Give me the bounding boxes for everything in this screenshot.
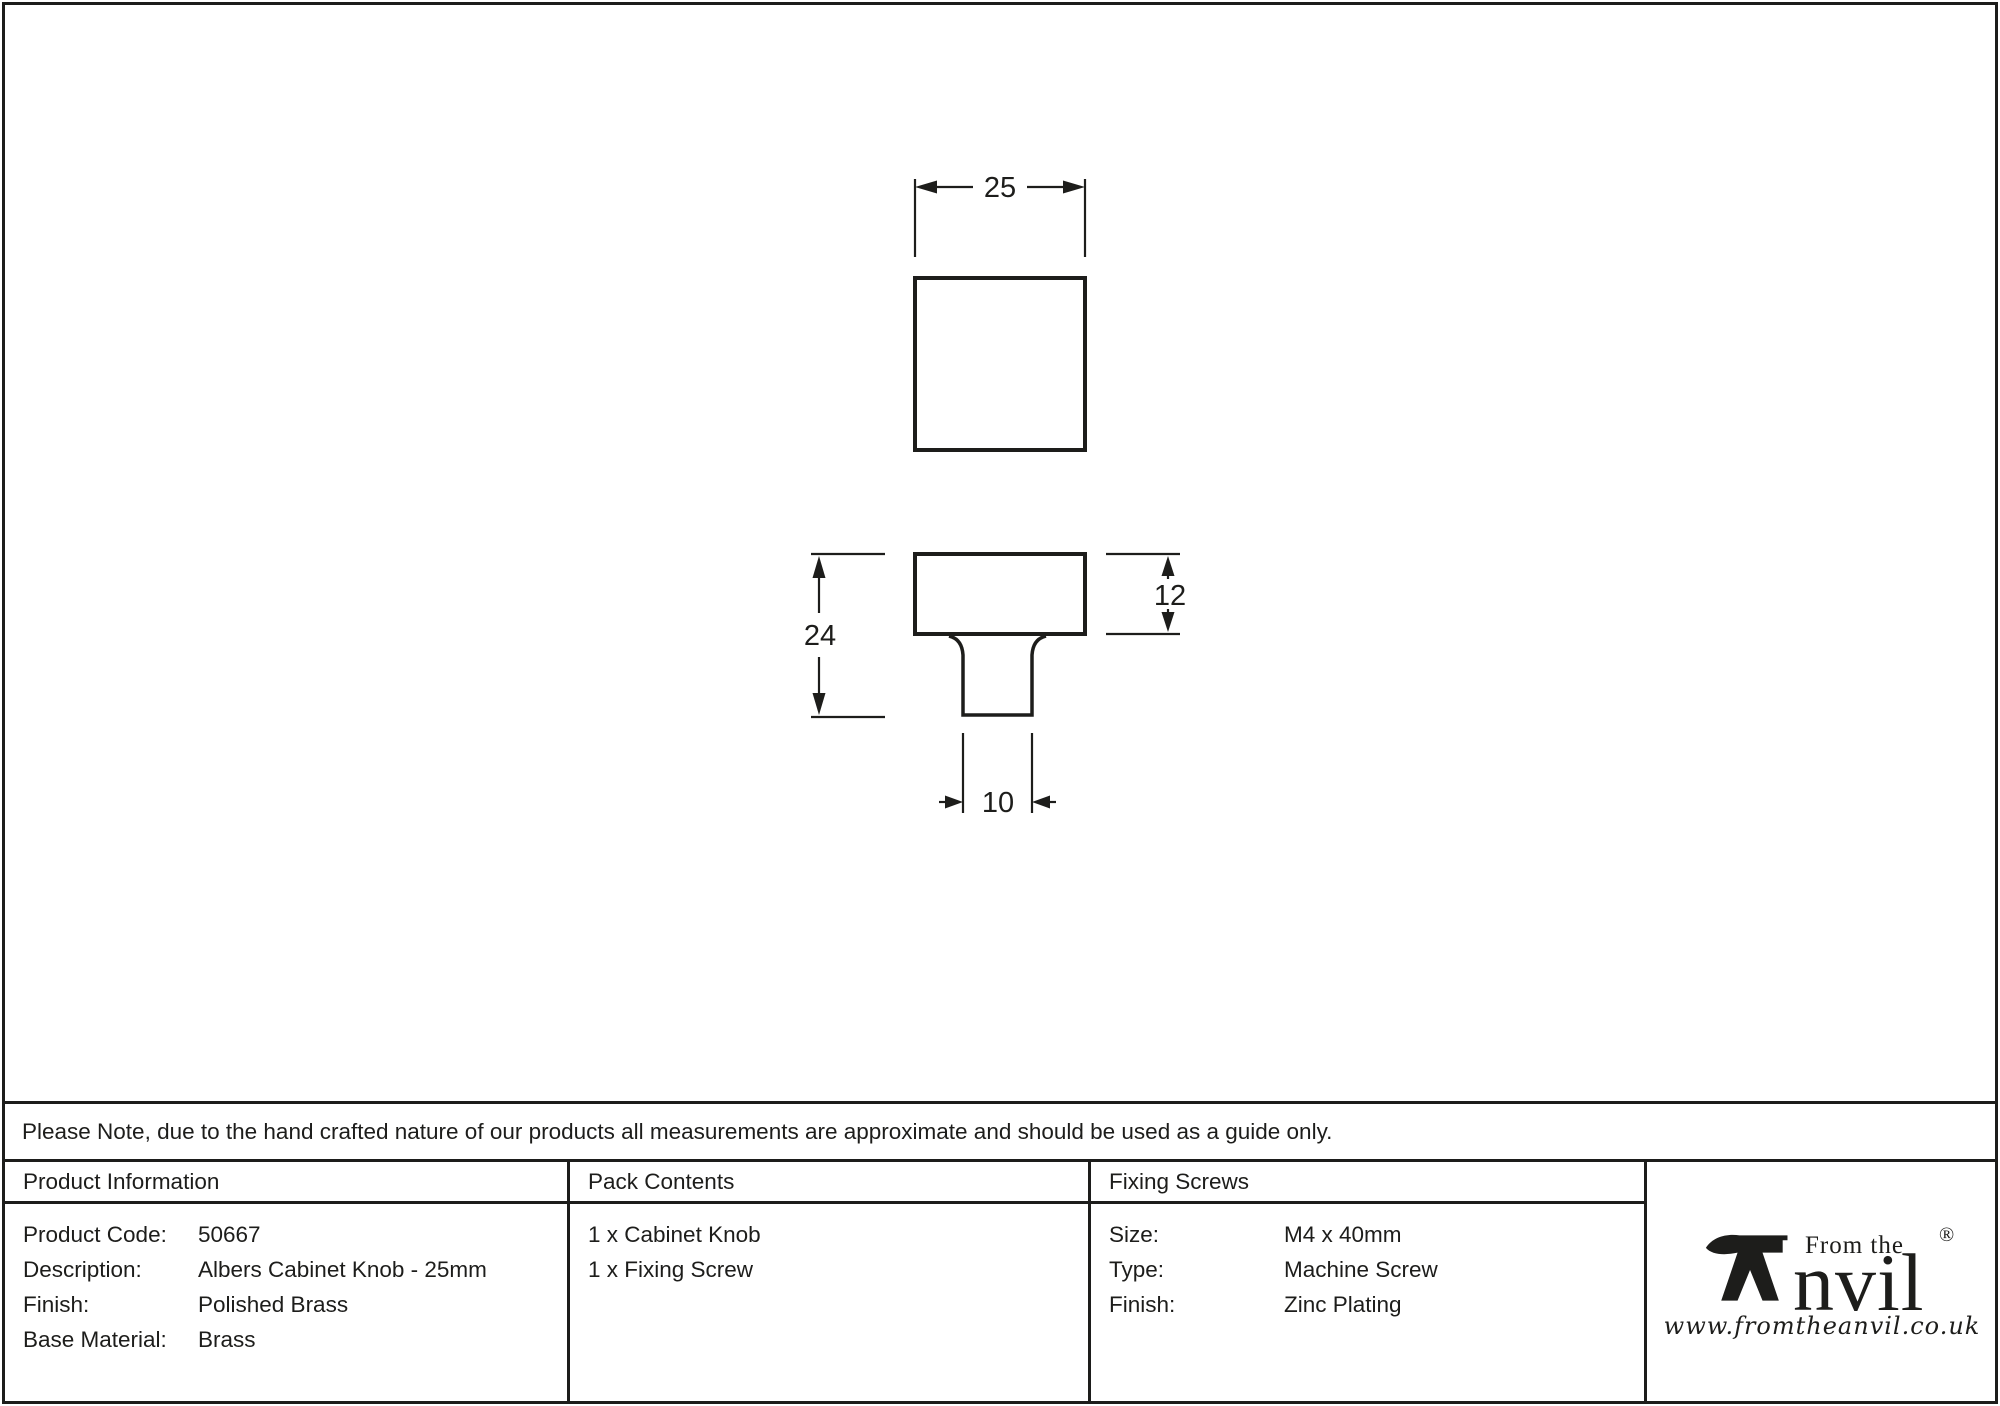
table-row: Finish: Polished Brass — [23, 1287, 567, 1322]
table-row: Finish: Zinc Plating — [1109, 1287, 1644, 1322]
knob-stem-outline — [949, 636, 1046, 715]
pack-contents-header: Pack Contents — [570, 1162, 1088, 1204]
list-item: 1 x Fixing Screw — [588, 1252, 1088, 1287]
table-row: Product Code: 50667 — [23, 1217, 567, 1252]
arrowhead-right-icon — [1063, 181, 1085, 194]
dimension-head-depth: 12 — [1106, 554, 1186, 634]
technical-drawing: 25 24 — [5, 5, 1995, 1101]
knob-head-outline — [915, 554, 1085, 634]
arrowhead-up-icon — [1162, 556, 1175, 576]
table-row: Base Material: Brass — [23, 1322, 567, 1357]
product-information-header: Product Information — [5, 1162, 567, 1204]
row-label: Finish: — [23, 1287, 198, 1322]
spec-sheet-content: 25 24 — [5, 5, 1995, 1401]
arrowhead-down-icon — [813, 693, 826, 715]
front-view — [915, 278, 1085, 450]
row-label: Product Code: — [23, 1217, 198, 1252]
product-information-section: Product Information Product Code: 50667 … — [5, 1162, 570, 1401]
pack-contents-section: Pack Contents 1 x Cabinet Knob 1 x Fixin… — [570, 1162, 1091, 1401]
anvil-icon — [1703, 1230, 1799, 1308]
arrowhead-left-icon — [1032, 796, 1050, 809]
row-value: Zinc Plating — [1284, 1287, 1644, 1322]
row-label: Type: — [1109, 1252, 1284, 1287]
dim-label-width: 25 — [984, 172, 1016, 204]
dim-label-stem-width: 10 — [982, 787, 1014, 819]
spec-sheet-page: 25 24 — [2, 2, 1998, 1404]
row-value: M4 x 40mm — [1284, 1217, 1644, 1252]
row-label: Size: — [1109, 1217, 1284, 1252]
dimension-width: 25 — [915, 172, 1085, 257]
row-label: Finish: — [1109, 1287, 1284, 1322]
info-table: Product Information Product Code: 50667 … — [5, 1162, 1995, 1401]
note-text: Please Note, due to the hand crafted nat… — [22, 1119, 1332, 1145]
note-bar: Please Note, due to the hand crafted nat… — [5, 1101, 1995, 1162]
row-value: Brass — [198, 1322, 567, 1357]
fixing-screws-section: Fixing Screws Size: M4 x 40mm Type: Mach… — [1091, 1162, 1647, 1401]
arrowhead-right-icon — [945, 796, 963, 809]
arrowhead-up-icon — [813, 556, 826, 578]
brand-logo-cell: From the nvil ® www.fromtheanvil.co.uk — [1647, 1162, 1995, 1401]
dim-label-head-depth: 12 — [1154, 580, 1186, 612]
row-value: Polished Brass — [198, 1287, 567, 1322]
table-row: Description: Albers Cabinet Knob - 25mm — [23, 1252, 567, 1287]
list-item: 1 x Cabinet Knob — [588, 1217, 1088, 1252]
arrowhead-left-icon — [915, 181, 937, 194]
from-the-anvil-logo: From the nvil ® www.fromtheanvil.co.uk — [1647, 1162, 1995, 1401]
knob-front-outline — [915, 278, 1085, 450]
side-view — [915, 554, 1085, 715]
arrowhead-down-icon — [1162, 612, 1175, 632]
dimension-overall-height: 24 — [804, 554, 885, 717]
dim-label-overall-height: 24 — [804, 620, 836, 652]
pack-contents-body: 1 x Cabinet Knob 1 x Fixing Screw — [570, 1204, 1088, 1287]
fixing-screws-header: Fixing Screws — [1091, 1162, 1644, 1204]
row-value: 50667 — [198, 1217, 567, 1252]
logo-website-url: www.fromtheanvil.co.uk — [1657, 1312, 1987, 1340]
row-value: Albers Cabinet Knob - 25mm — [198, 1252, 567, 1287]
registered-trademark-icon: ® — [1939, 1224, 1954, 1247]
table-row: Type: Machine Screw — [1109, 1252, 1644, 1287]
row-value: Machine Screw — [1284, 1252, 1644, 1287]
table-row: Size: M4 x 40mm — [1109, 1217, 1644, 1252]
row-label: Base Material: — [23, 1322, 198, 1357]
dimension-stem-width: 10 — [939, 733, 1056, 819]
row-label: Description: — [23, 1252, 198, 1287]
fixing-screws-body: Size: M4 x 40mm Type: Machine Screw Fini… — [1091, 1204, 1644, 1322]
product-information-body: Product Code: 50667 Description: Albers … — [5, 1204, 567, 1357]
